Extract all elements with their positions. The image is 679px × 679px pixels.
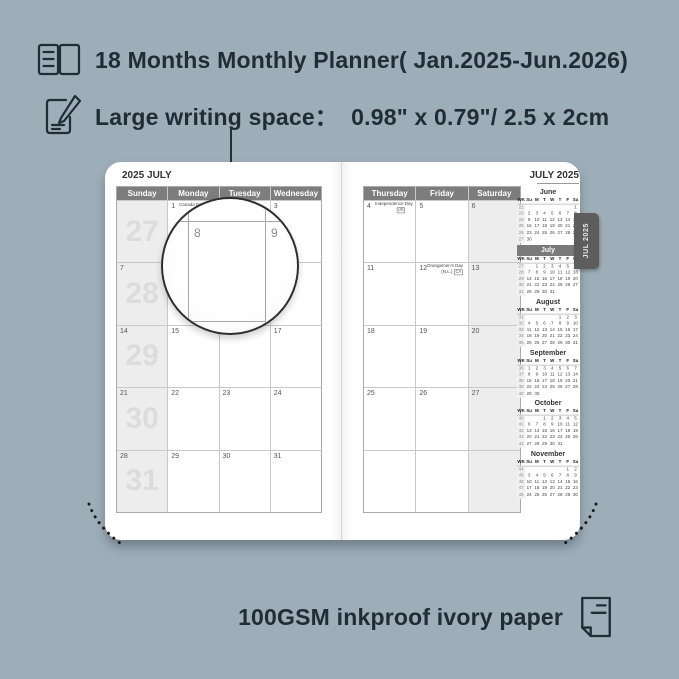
- calendar-cell: [416, 451, 467, 512]
- mini-day-header: Su: [525, 459, 533, 466]
- mini-date: 6: [564, 365, 572, 371]
- week-number-watermark: 29: [117, 326, 167, 387]
- mini-calendar-title: November: [517, 450, 579, 459]
- mini-date: 30: [564, 340, 572, 346]
- mini-date: 23: [572, 485, 580, 491]
- mini-date: 19: [556, 378, 564, 384]
- mini-day-header: Sa: [572, 459, 580, 466]
- mini-date: 28: [533, 441, 541, 447]
- mini-date: 5: [541, 473, 549, 479]
- feature-line-writing-space: Large writing space： 0.98" x 0.79"/ 2.5 …: [40, 93, 609, 137]
- mini-date: 11: [548, 371, 556, 377]
- calendar-cell: 20: [469, 326, 520, 387]
- calendar-cell: 29: [168, 451, 218, 512]
- mini-date: 17: [572, 327, 580, 333]
- planner-spread: 2025 JULY JULY 2025 SundayMondayTuesdayW…: [105, 162, 580, 540]
- calendar-cell: 23: [220, 388, 270, 449]
- mini-day-header: T: [556, 197, 564, 204]
- mini-date: 10: [572, 320, 580, 326]
- magnifier-circle: 8 9: [161, 197, 299, 335]
- mini-day-header: F: [564, 197, 572, 204]
- mini-day-header: W: [548, 307, 556, 314]
- mini-calendar-table: WKSuMTWTFSa36123456737891011121314381516…: [517, 358, 579, 397]
- mini-day-header: T: [541, 459, 549, 466]
- mini-date: 3: [541, 365, 549, 371]
- mini-date: 25: [525, 340, 533, 346]
- mini-date: [548, 314, 556, 320]
- mini-date: 22: [556, 333, 564, 339]
- mini-date: 16: [564, 327, 572, 333]
- calendar-cell: 16: [220, 326, 270, 387]
- mini-date: 30: [572, 492, 580, 498]
- mini-week-number: 39: [517, 384, 525, 390]
- mini-date: 27: [525, 441, 533, 447]
- holiday-note-line2: (N.L.)CA: [427, 270, 467, 276]
- mini-date: [564, 236, 572, 242]
- mini-date: 9: [572, 473, 580, 479]
- mini-date: 26: [541, 492, 549, 498]
- mini-date: 9: [564, 320, 572, 326]
- mini-date: 8: [564, 473, 572, 479]
- calendar-cell: 18: [364, 326, 415, 387]
- mini-calendar-title: August: [517, 298, 579, 307]
- mini-date: [548, 236, 556, 242]
- mini-date: 22: [525, 384, 533, 390]
- feature-text-planner-range: 18 Months Monthly Planner( Jan.2025-Jun.…: [95, 47, 628, 74]
- month-tab: JUL 2025: [574, 213, 599, 269]
- mini-day-header: Sa: [572, 358, 580, 365]
- holiday-note-line2: US: [375, 207, 415, 213]
- mini-date: 20: [564, 378, 572, 384]
- footer-text: 100GSM inkproof ivory paper: [238, 604, 563, 631]
- mini-date: 5: [556, 365, 564, 371]
- mini-calendar-title: October: [517, 399, 579, 408]
- mini-date: 8: [525, 371, 533, 377]
- calendar-cell: 5: [416, 201, 467, 262]
- date-number: 29: [171, 453, 179, 460]
- mini-date: 24: [572, 333, 580, 339]
- day-header: Friday: [416, 187, 467, 200]
- holiday-name: Independence Day: [375, 202, 413, 207]
- mini-date: 27: [564, 384, 572, 390]
- magnified-date-8: 8: [194, 226, 201, 240]
- mini-week-number: 38: [517, 378, 525, 384]
- holiday-name: Orangemen's Day: [427, 264, 463, 269]
- mini-date: [556, 289, 564, 295]
- mini-date: 22: [564, 485, 572, 491]
- mini-day-header: Sa: [572, 197, 580, 204]
- mini-date: 1: [556, 314, 564, 320]
- mini-day-header: T: [541, 197, 549, 204]
- calendar-cell: 27: [117, 201, 167, 262]
- mini-date: 31: [548, 289, 556, 295]
- stitch-dots-bottom-left: [84, 500, 130, 550]
- mini-day-header: M: [533, 459, 541, 466]
- month-tab-label: JUL 2025: [583, 223, 590, 258]
- mini-date: [541, 236, 549, 242]
- date-number: 22: [171, 390, 179, 397]
- mini-date: 20: [541, 333, 549, 339]
- notebook-icon: [36, 40, 82, 80]
- mini-calendar-table: WKSuMTWTFSa40123454167891011124213141516…: [517, 408, 579, 447]
- magnified-date-9: 9: [271, 226, 278, 240]
- left-page-title: 2025 JULY: [122, 170, 172, 181]
- mini-date: 2: [564, 314, 572, 320]
- mini-date: [564, 390, 572, 396]
- mini-week-number: 36: [517, 365, 525, 371]
- mini-date: 21: [548, 333, 556, 339]
- mini-calendar-july: JulyWKSuMTWTFSa2712345628789101112132914…: [517, 245, 579, 295]
- mini-calendar-title: September: [517, 349, 579, 358]
- calendar-cell: 287: [117, 263, 167, 324]
- mini-week-number: 31: [517, 289, 525, 295]
- mini-date: 25: [548, 384, 556, 390]
- magnified-cell-left-border: [188, 199, 189, 333]
- mini-date: 14: [556, 479, 564, 485]
- mini-date: 2: [572, 466, 580, 472]
- mini-date: 15: [556, 327, 564, 333]
- mini-date: 27: [548, 492, 556, 498]
- pencil-note-icon: [40, 93, 82, 137]
- right-page-calendar-grid: ThursdayFridaySaturday4Independence DayU…: [363, 186, 521, 513]
- mini-date: 4: [548, 365, 556, 371]
- mini-date: 6: [548, 473, 556, 479]
- calendar-cell: 25: [364, 388, 415, 449]
- mini-date: [572, 441, 580, 447]
- mini-date: 28: [525, 289, 533, 295]
- mini-calendar-table-wrap: WKSuMTWTFSa22123234567824910111213141525…: [517, 197, 579, 242]
- mini-date: 10: [525, 479, 533, 485]
- mini-calendar-table-wrap: WKSuMTWTFSa36123456737891011121314381516…: [517, 358, 579, 397]
- mini-calendar-table-wrap: WKSuMTWTFSa40123454167891011124213141516…: [517, 408, 579, 447]
- date-number: 28: [120, 453, 128, 460]
- product-image: 18 Months Monthly Planner( Jan.2025-Jun.…: [0, 0, 679, 679]
- date-number: 5: [419, 203, 423, 210]
- mini-date: [556, 390, 564, 396]
- mini-week-number: 27: [517, 236, 525, 242]
- date-number: 26: [419, 390, 427, 397]
- mini-calendar-november: NovemberWKSuMTWTFSa441245345678946101112…: [517, 450, 579, 498]
- mini-date: [548, 390, 556, 396]
- mini-date: 28: [572, 384, 580, 390]
- mini-date: 14: [548, 327, 556, 333]
- mini-date: 29: [564, 492, 572, 498]
- day-header: Wednesday: [271, 187, 321, 200]
- mini-date: 18: [548, 378, 556, 384]
- mini-day-header: T: [556, 459, 564, 466]
- mini-week-number: 32: [517, 320, 525, 326]
- magnified-cell-right-border: [265, 199, 266, 333]
- mini-date: 18: [525, 333, 533, 339]
- holiday-note: Orangemen's Day(N.L.)CA: [427, 264, 467, 275]
- calendar-cell: 24: [271, 388, 321, 449]
- mini-date: 29: [525, 390, 533, 396]
- mini-date: 14: [572, 371, 580, 377]
- mini-week-number: 44: [517, 466, 525, 472]
- mini-week-number: 45: [517, 473, 525, 479]
- mini-date: 1: [525, 365, 533, 371]
- mini-date: 29: [541, 441, 549, 447]
- mini-date: 29: [533, 289, 541, 295]
- mini-day-header: T: [541, 358, 549, 365]
- mini-date: 10: [541, 371, 549, 377]
- mini-calendar-table: WKSuMTWTFSa31123324567891033111213141516…: [517, 307, 579, 346]
- date-number: 30: [223, 453, 231, 460]
- week-number-watermark: 28: [117, 263, 167, 324]
- date-number: 3: [274, 203, 278, 210]
- mini-date: 4: [525, 320, 533, 326]
- mini-date: 28: [548, 340, 556, 346]
- mini-week-number: 48: [517, 492, 525, 498]
- feature-line-planner-range: 18 Months Monthly Planner( Jan.2025-Jun.…: [36, 40, 628, 80]
- calendar-cell: 17: [271, 326, 321, 387]
- mini-calendar-september: SeptemberWKSuMTWTFSa36123456737891011121…: [517, 349, 579, 397]
- mini-date: 12: [556, 371, 564, 377]
- mini-week-number: 40: [517, 390, 525, 396]
- calendar-cell: [364, 451, 415, 512]
- footer-feature-line: 100GSM inkproof ivory paper: [238, 591, 615, 643]
- mini-calendar-table-wrap: WKSuMTWTFSa44124534567894610111213141516…: [517, 459, 579, 498]
- date-number: 7: [120, 265, 124, 272]
- feature-text-writing-space: Large writing space： 0.98" x 0.79"/ 2.5 …: [95, 98, 609, 132]
- date-number: 20: [472, 328, 480, 335]
- mini-calendar-table: WKSuMTWTFSa44124534567894610111213141516…: [517, 459, 579, 498]
- calendar-cell: 12Orangemen's Day(N.L.)CA: [416, 263, 467, 324]
- mini-date: 31: [572, 340, 580, 346]
- week-number-watermark: 30: [117, 388, 167, 449]
- mini-date: [525, 466, 533, 472]
- mini-date: 21: [556, 485, 564, 491]
- day-header: Thursday: [364, 187, 415, 200]
- magnified-row-line: [163, 221, 297, 222]
- mini-date: [556, 466, 564, 472]
- date-number: 27: [472, 390, 480, 397]
- mini-date: 17: [525, 485, 533, 491]
- date-number: 15: [171, 328, 179, 335]
- mini-day-header: WK: [517, 197, 525, 204]
- calendar-cell: 19: [416, 326, 467, 387]
- mini-date: [533, 314, 541, 320]
- right-page-title: JULY 2025: [513, 170, 579, 181]
- sidebar-separator: [537, 183, 579, 184]
- mini-date: 12: [533, 327, 541, 333]
- mini-day-header: Sa: [572, 307, 580, 314]
- mini-date: [541, 466, 549, 472]
- mini-date: 3: [572, 314, 580, 320]
- mini-date: 6: [541, 320, 549, 326]
- calendar-cell: 31: [271, 451, 321, 512]
- mini-date: 16: [572, 479, 580, 485]
- day-header: Monday: [168, 187, 218, 200]
- mini-day-header: W: [548, 459, 556, 466]
- date-number: 12: [419, 265, 427, 272]
- mini-day-header: T: [541, 307, 549, 314]
- mini-date: [548, 466, 556, 472]
- mini-date: 9: [533, 371, 541, 377]
- date-number: 23: [223, 390, 231, 397]
- mini-calendar-table: WKSuMTWTFSa27123456287891011121329141516…: [517, 256, 579, 295]
- mini-date: 30: [541, 289, 549, 295]
- mini-date: 24: [525, 492, 533, 498]
- mini-date: 27: [541, 340, 549, 346]
- mini-day-header: M: [533, 307, 541, 314]
- mini-date: 31: [556, 441, 564, 447]
- date-number: 17: [274, 328, 282, 335]
- mini-day-header: WK: [517, 459, 525, 466]
- mini-day-header: Su: [525, 307, 533, 314]
- mini-date: 20: [548, 485, 556, 491]
- mini-day-header: WK: [517, 307, 525, 314]
- date-number: 19: [419, 328, 427, 335]
- mini-date: 13: [541, 327, 549, 333]
- mini-day-header: Su: [525, 358, 533, 365]
- day-header: Sunday: [117, 187, 167, 200]
- page-seam: [341, 162, 342, 540]
- mini-week-number: 44: [517, 441, 525, 447]
- date-number: 14: [120, 328, 128, 335]
- mini-date: [572, 289, 580, 295]
- mini-date: 26: [556, 384, 564, 390]
- calendar-cell: 22: [168, 388, 218, 449]
- mini-date: 7: [548, 320, 556, 326]
- mini-day-header: M: [533, 358, 541, 365]
- mini-calendar-october: OctoberWKSuMTWTFSa4012345416789101112421…: [517, 399, 579, 447]
- mini-date: 15: [564, 479, 572, 485]
- mini-date: 28: [556, 492, 564, 498]
- mini-date: 19: [541, 485, 549, 491]
- calendar-cell: 13: [469, 263, 520, 324]
- date-number: 11: [367, 265, 374, 272]
- mini-date: [564, 441, 572, 447]
- mini-week-number: 33: [517, 327, 525, 333]
- mini-date: [541, 314, 549, 320]
- mini-calendar-june: JuneWKSuMTWTFSa2212323456782491011121314…: [517, 188, 579, 242]
- mini-date: 19: [533, 333, 541, 339]
- calendar-cell: 6: [469, 201, 520, 262]
- mini-day-header: F: [564, 358, 572, 365]
- holiday-note: Independence DayUS: [375, 202, 415, 213]
- mini-date: 30: [548, 441, 556, 447]
- date-number: 1: [171, 203, 175, 210]
- mini-date: 26: [533, 340, 541, 346]
- mini-date: 18: [533, 485, 541, 491]
- mini-week-number: 35: [517, 340, 525, 346]
- mini-date: 1: [564, 466, 572, 472]
- date-number: 6: [472, 203, 476, 210]
- calendar-cell: 26: [416, 388, 467, 449]
- mini-date: 12: [541, 479, 549, 485]
- mini-day-header: WK: [517, 358, 525, 365]
- mini-date: 16: [533, 378, 541, 384]
- week-number-watermark: 27: [117, 201, 167, 262]
- mini-day-header: F: [564, 307, 572, 314]
- mini-week-number: 37: [517, 371, 525, 377]
- calendar-cell: 30: [220, 451, 270, 512]
- calendar-cell: 15: [168, 326, 218, 387]
- mini-date: [564, 289, 572, 295]
- mini-date: 11: [533, 479, 541, 485]
- date-number: 25: [367, 390, 375, 397]
- mini-date: 24: [541, 384, 549, 390]
- mini-calendar-title: June: [517, 188, 579, 197]
- mini-week-number: 31: [517, 314, 525, 320]
- calendar-cell: [469, 451, 520, 512]
- mini-date: [525, 314, 533, 320]
- mini-date: 13: [548, 479, 556, 485]
- mini-week-number: 34: [517, 333, 525, 339]
- mini-date: [572, 390, 580, 396]
- calendar-cell: 2914: [117, 326, 167, 387]
- magnified-cell-bottom-border: [188, 321, 265, 322]
- mini-date: [533, 236, 541, 242]
- mini-date: [541, 390, 549, 396]
- mini-date: 8: [556, 320, 564, 326]
- stitch-dots-bottom-right: [555, 500, 601, 550]
- mini-day-header: W: [548, 197, 556, 204]
- mini-date: 29: [556, 340, 564, 346]
- date-number: 21: [120, 390, 128, 397]
- mini-date: 23: [533, 384, 541, 390]
- mini-date: 7: [572, 365, 580, 371]
- mini-date: 7: [556, 473, 564, 479]
- country-badge: US: [396, 207, 405, 213]
- mini-calendar-title: July: [517, 245, 579, 256]
- country-badge: CA: [454, 270, 463, 276]
- mini-date: 2: [533, 365, 541, 371]
- mini-day-header: W: [548, 358, 556, 365]
- mini-date: 21: [572, 378, 580, 384]
- mini-calendar-table: WKSuMTWTFSa22123234567824910111213141525…: [517, 197, 579, 243]
- mini-day-header: T: [556, 307, 564, 314]
- mini-day-header: T: [556, 358, 564, 365]
- mini-week-number: 46: [517, 479, 525, 485]
- mini-date: 30: [533, 390, 541, 396]
- date-number: 24: [274, 390, 282, 397]
- mini-week-number: 47: [517, 485, 525, 491]
- calendar-cell: 3021: [117, 388, 167, 449]
- mini-date: 17: [541, 378, 549, 384]
- mini-date: 5: [533, 320, 541, 326]
- mini-date: 30: [525, 236, 533, 242]
- mini-calendar-august: AugustWKSuMTWTFSa31123324567891033111213…: [517, 298, 579, 346]
- mini-day-header: F: [564, 459, 572, 466]
- mini-date: 13: [564, 371, 572, 377]
- mini-date: 23: [564, 333, 572, 339]
- date-number: 18: [367, 328, 375, 335]
- mini-date: 15: [525, 378, 533, 384]
- mini-calendar-table-wrap: WKSuMTWTFSa31123324567891033111213141516…: [517, 307, 579, 346]
- mini-date: [556, 236, 564, 242]
- mini-date: [533, 466, 541, 472]
- date-number: 13: [472, 265, 480, 272]
- calendar-cell: 4Independence DayUS: [364, 201, 415, 262]
- date-number: 31: [274, 453, 282, 460]
- mini-date: 3: [525, 473, 533, 479]
- mini-date: 11: [525, 327, 533, 333]
- calendar-cell: 27: [469, 388, 520, 449]
- mini-calendar-table-wrap: WKSuMTWTFSa27123456287891011121329141516…: [517, 256, 579, 295]
- mini-date: 25: [533, 492, 541, 498]
- date-number: 4: [367, 203, 371, 210]
- calendar-cell: 11: [364, 263, 415, 324]
- mini-date: 4: [533, 473, 541, 479]
- mini-day-header: Su: [525, 197, 533, 204]
- mini-day-header: M: [533, 197, 541, 204]
- paper-icon: [577, 594, 615, 640]
- mini-calendar-sidebar: JuneWKSuMTWTFSa2212323456782491011121314…: [517, 183, 579, 498]
- day-header: Saturday: [469, 187, 520, 200]
